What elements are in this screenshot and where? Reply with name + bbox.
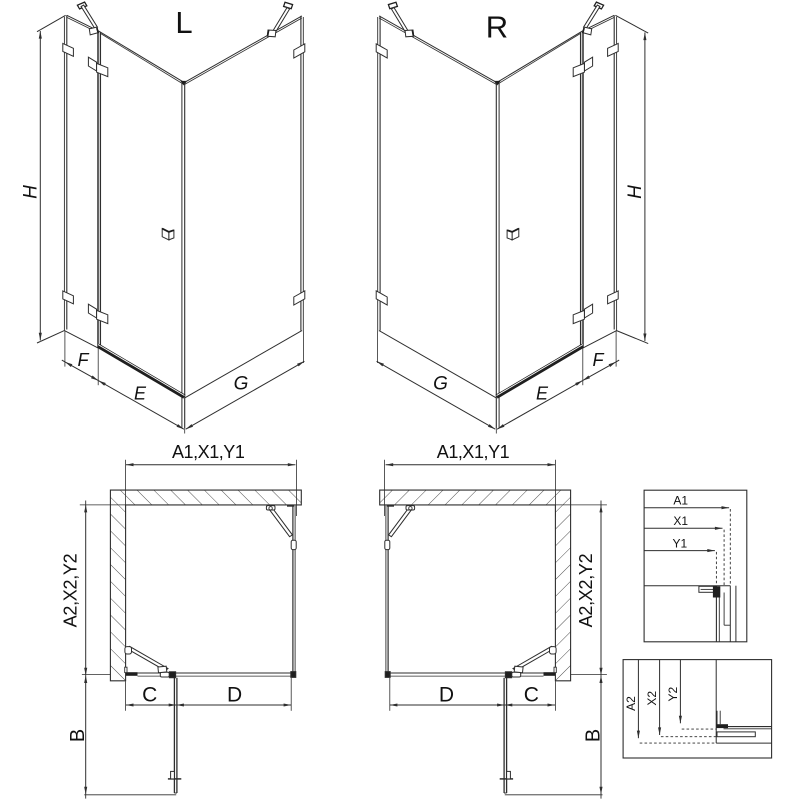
- svg-text:A2: A2: [624, 696, 638, 711]
- svg-text:H: H: [21, 185, 42, 199]
- svg-text:B: B: [582, 729, 604, 742]
- svg-text:F: F: [78, 350, 90, 370]
- svg-text:C: C: [142, 684, 157, 707]
- svg-text:Y2: Y2: [666, 686, 680, 701]
- svg-text:X2: X2: [645, 691, 659, 706]
- svg-text:D: D: [227, 684, 242, 707]
- svg-text:Y1: Y1: [673, 537, 688, 551]
- svg-text:G: G: [433, 374, 448, 395]
- svg-text:D: D: [439, 684, 454, 707]
- svg-text:A2,X2,Y2: A2,X2,Y2: [576, 553, 596, 627]
- svg-text:X1: X1: [673, 514, 688, 528]
- svg-text:F: F: [593, 350, 605, 370]
- svg-text:A1,X1,Y1: A1,X1,Y1: [172, 442, 245, 462]
- svg-text:E: E: [536, 384, 549, 404]
- svg-text:E: E: [134, 384, 147, 404]
- svg-text:A1: A1: [673, 494, 688, 508]
- svg-text:A1,X1,Y1: A1,X1,Y1: [437, 442, 510, 462]
- svg-text:H: H: [625, 185, 646, 199]
- svg-text:C: C: [524, 684, 539, 707]
- svg-text:G: G: [234, 374, 249, 395]
- svg-text:A2,X2,Y2: A2,X2,Y2: [61, 553, 81, 627]
- svg-text:R: R: [486, 10, 508, 45]
- svg-text:B: B: [67, 729, 89, 742]
- svg-text:L: L: [175, 5, 192, 40]
